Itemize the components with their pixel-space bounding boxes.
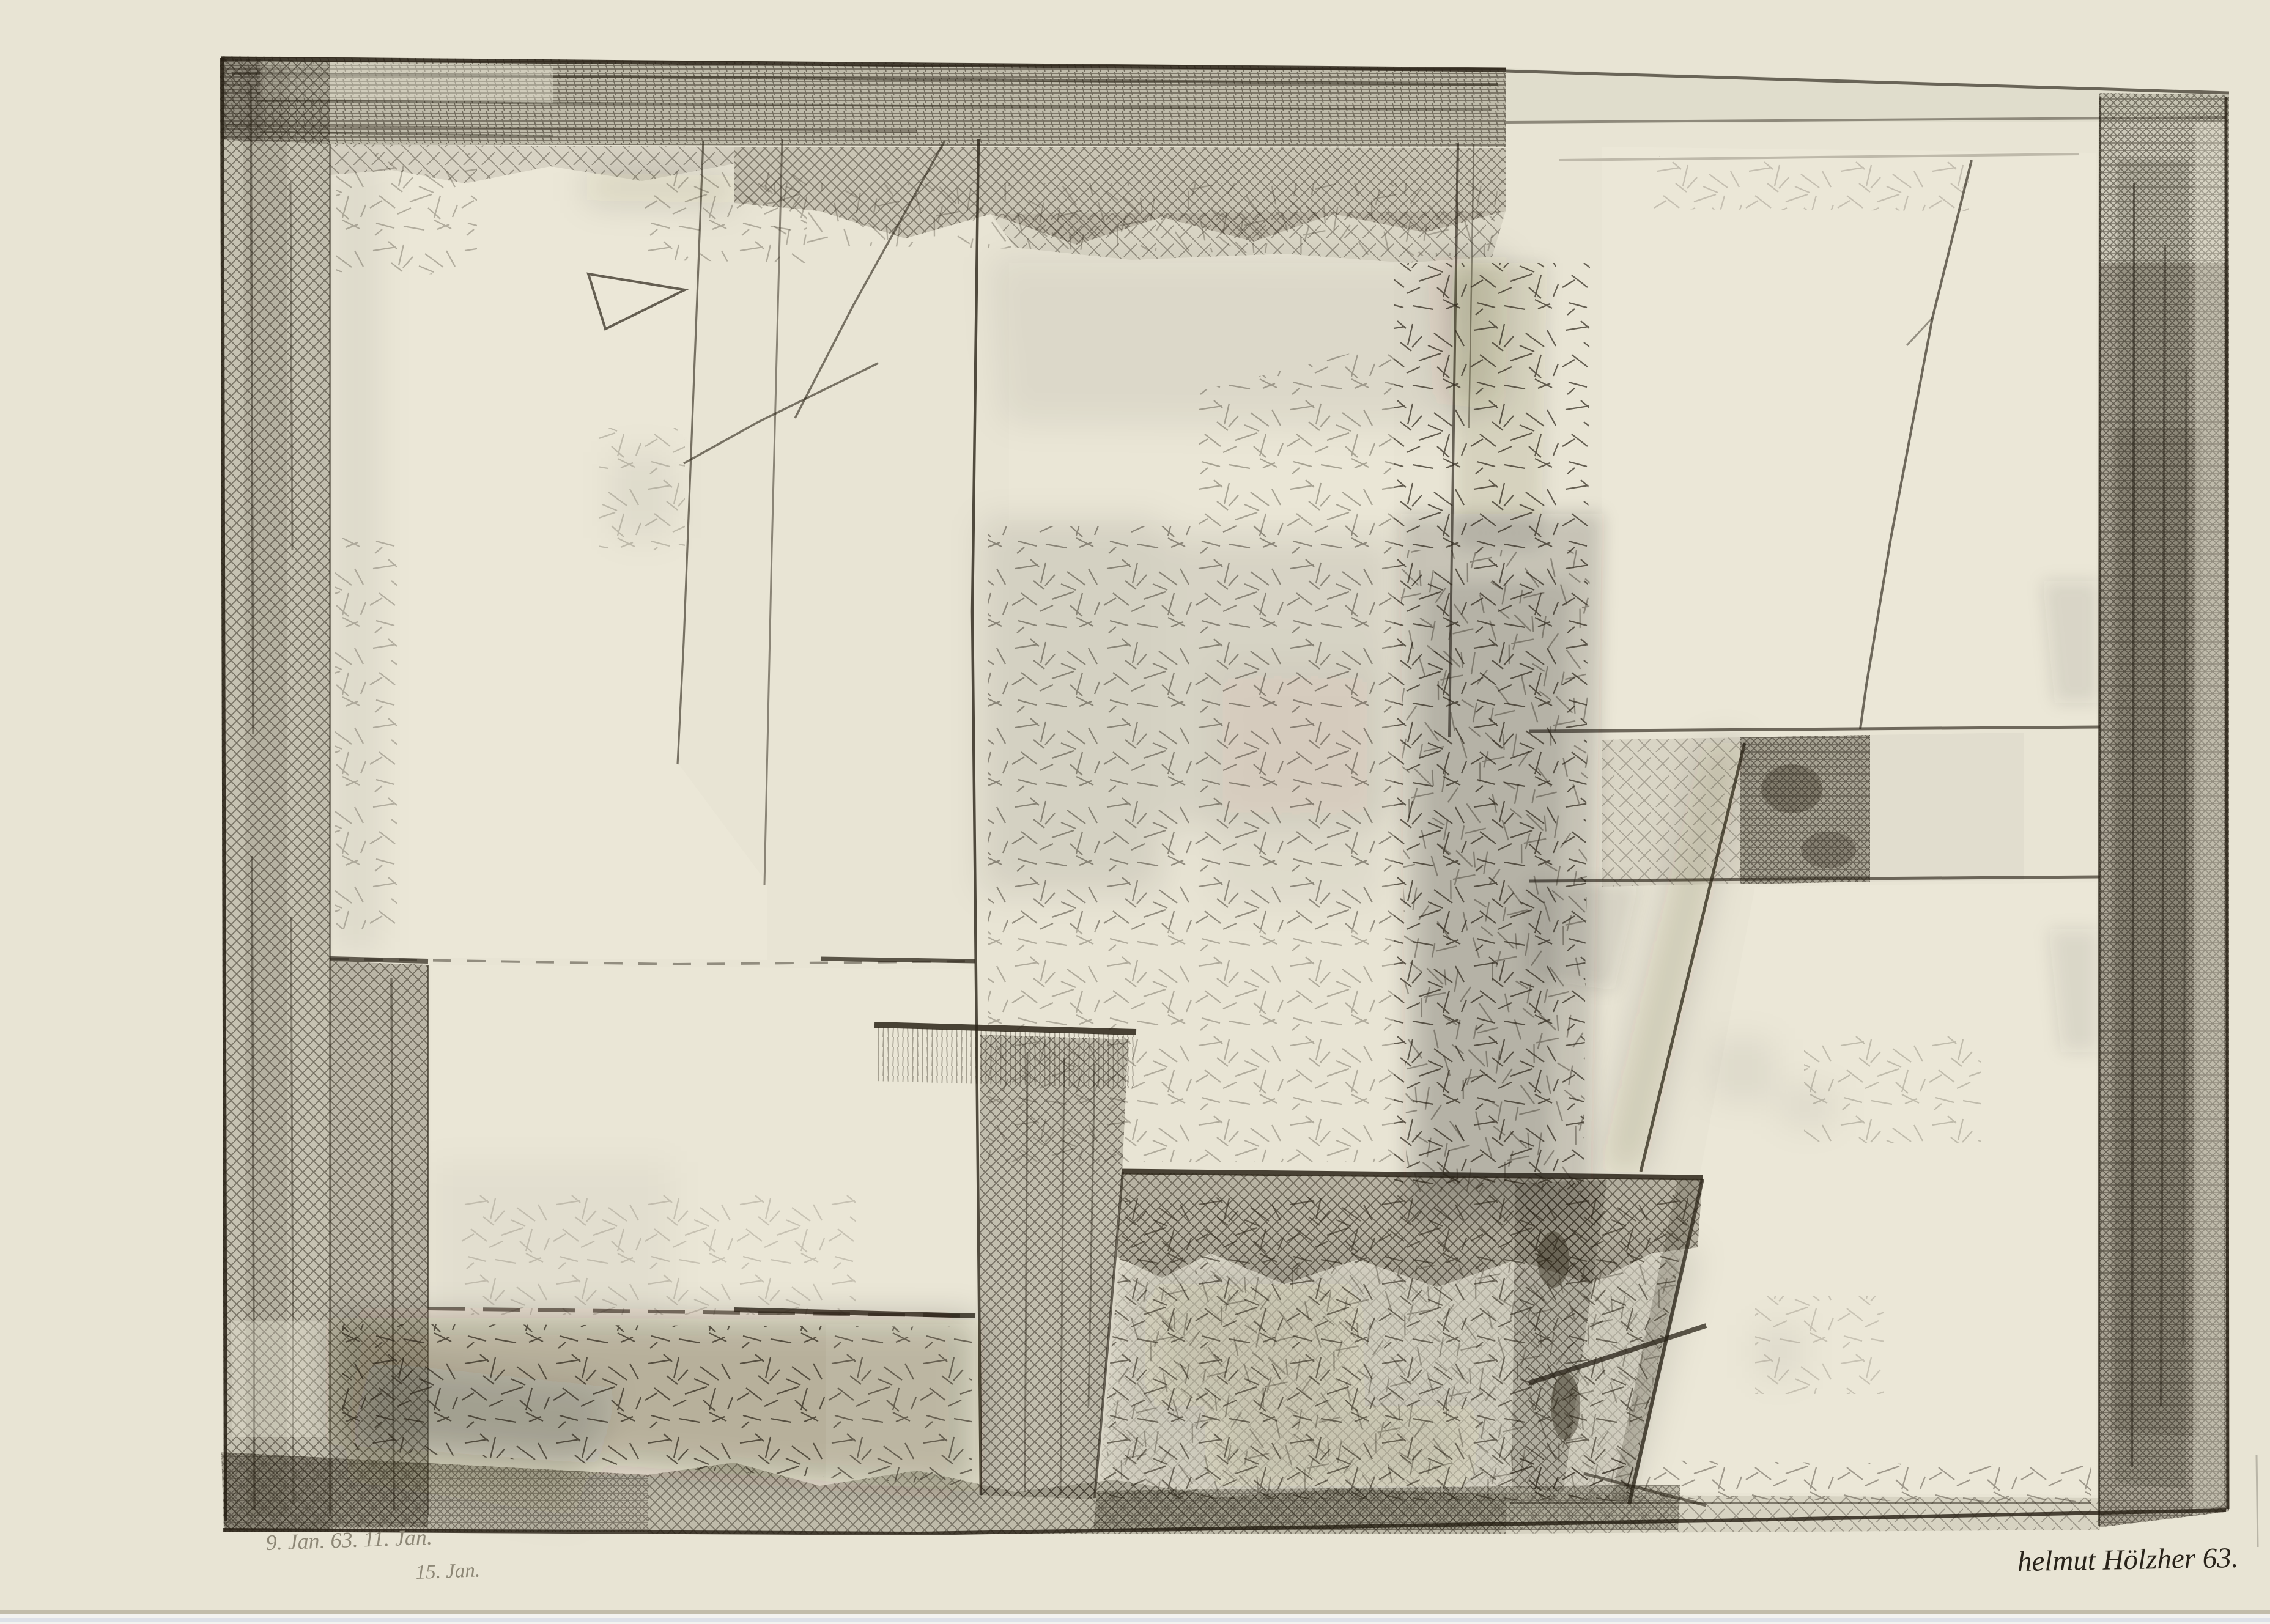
svg-text:helmut Hölzher 63.: helmut Hölzher 63. <box>2017 1542 2238 1578</box>
svg-text:15. Jan.: 15. Jan. <box>415 1559 481 1584</box>
